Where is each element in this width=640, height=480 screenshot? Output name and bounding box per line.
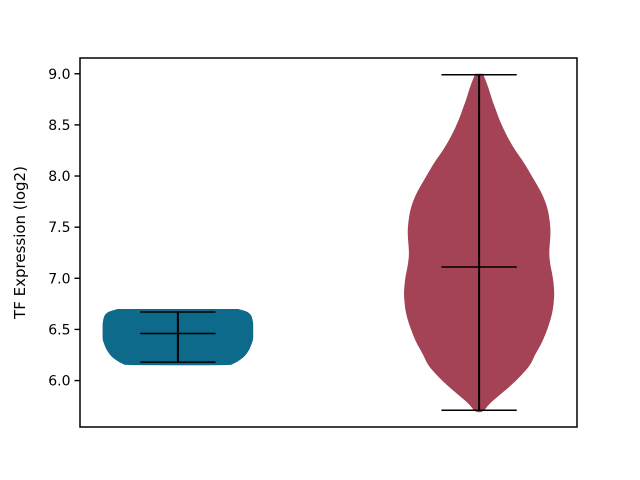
y-tick-label: 6.0 [48, 374, 70, 390]
y-tick-label: 9.0 [48, 67, 70, 83]
y-tick-label: 7.5 [48, 220, 70, 236]
y-tick-label: 8.5 [48, 118, 70, 134]
y-tick-label: 8.0 [48, 169, 70, 185]
y-tick-label: 6.5 [48, 322, 70, 338]
plot-svg: 6.06.57.07.58.08.59.0 TF Expression (log… [0, 0, 640, 480]
violin-plot-figure: 6.06.57.07.58.08.59.0 TF Expression (log… [0, 0, 640, 480]
y-axis-label: TF Expression (log2) [11, 166, 29, 320]
y-tick-label: 7.0 [48, 271, 70, 287]
